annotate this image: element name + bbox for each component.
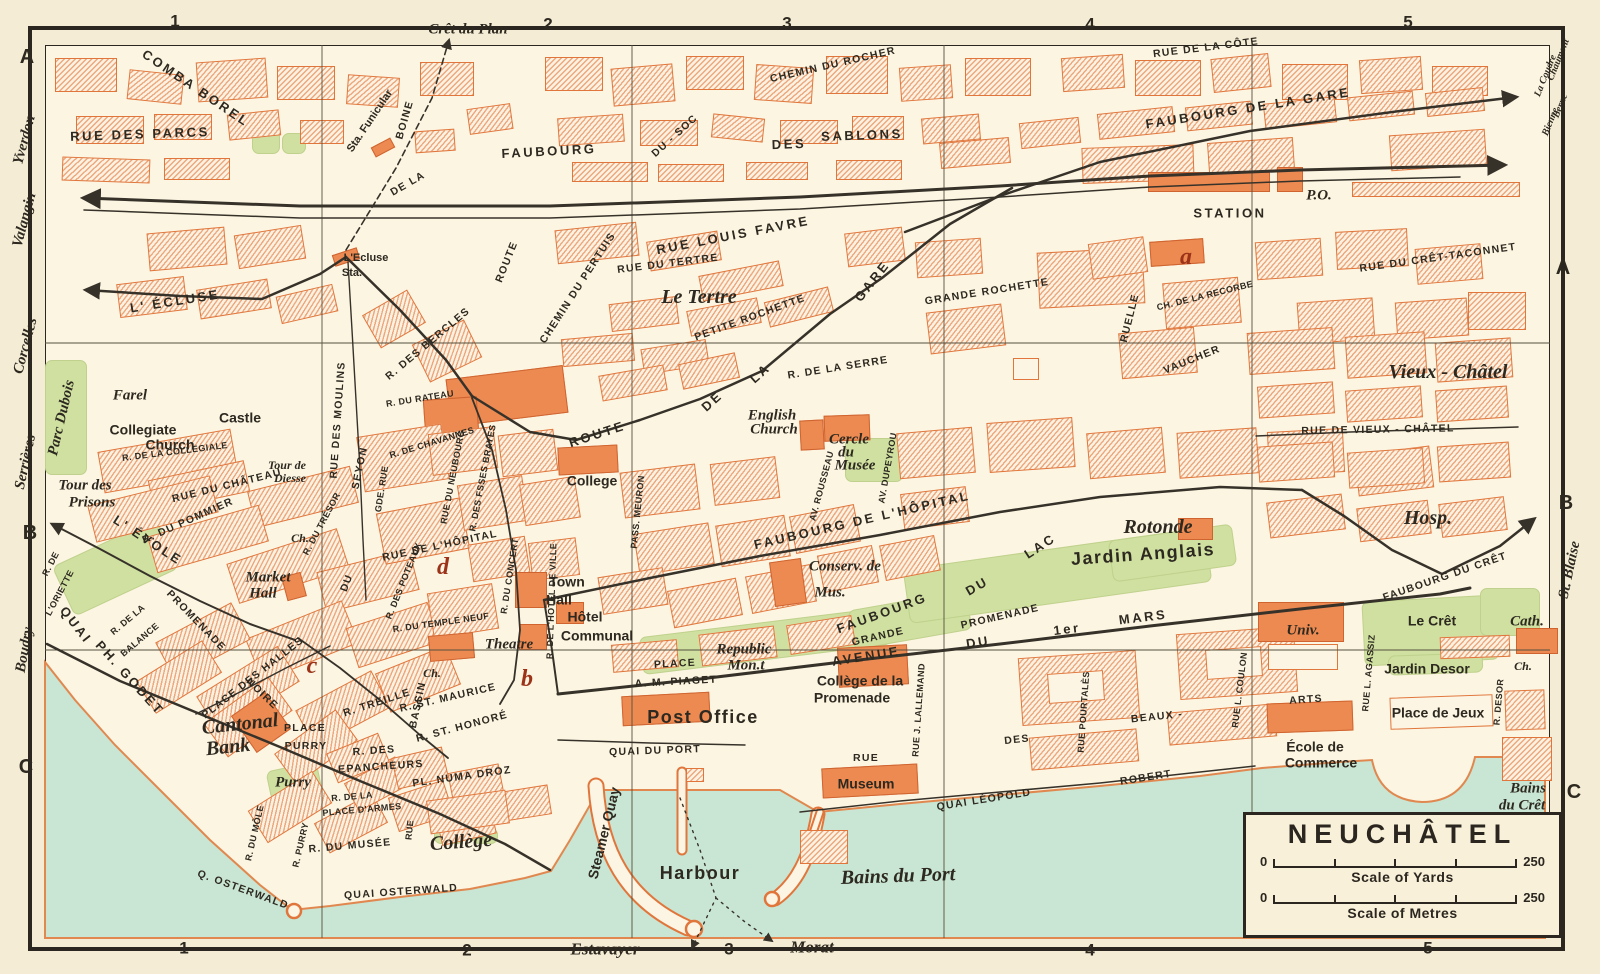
city-block: [300, 120, 344, 144]
label-rue: RUE: [853, 753, 879, 764]
city-block: [1247, 327, 1336, 375]
city-block: [658, 164, 724, 182]
building-solid: [1149, 238, 1205, 267]
label-b: B: [1559, 493, 1573, 513]
label-5: 5: [1423, 940, 1432, 957]
label-ch: Ch.: [291, 532, 309, 544]
city-block: [986, 417, 1075, 473]
city-block: [1061, 54, 1125, 92]
metres-zero: 0: [1260, 891, 1267, 904]
city-block: [55, 58, 117, 92]
label-du: DU: [965, 634, 991, 651]
label-harbour: Harbour: [660, 864, 741, 882]
map-title: NEUCHÂTEL: [1260, 821, 1545, 848]
map-sheet: NEUCHÂTEL 0 250 Scale of Yards 0 250 Sca…: [0, 0, 1600, 974]
city-block: [572, 162, 648, 182]
label-cole-de: École de: [1286, 740, 1344, 755]
label-univ: Univ.: [1286, 624, 1319, 639]
label-b: b: [521, 667, 533, 691]
city-block: [164, 158, 230, 180]
label-c: C: [19, 757, 33, 777]
label-church: Church: [146, 438, 195, 453]
label-des: DES: [772, 137, 807, 151]
label-a: A: [20, 47, 34, 67]
label-station: STATION: [1193, 207, 1266, 220]
label-cath: Cath.: [1510, 615, 1544, 630]
metres-scale: 0 250: [1260, 891, 1545, 904]
label-collegiate: Collegiate: [110, 423, 177, 438]
label-rue-de-vieux-ch-tel: RUE DE VIEUX - CHÂTEL: [1301, 423, 1454, 436]
city-block: [1440, 635, 1511, 659]
city-block: [915, 238, 983, 279]
city-block: [686, 56, 744, 90]
yards-scale: 0 250: [1260, 855, 1545, 868]
yards-caption: Scale of Yards: [1260, 870, 1545, 884]
city-block: [1468, 292, 1526, 330]
label-a: a: [1180, 245, 1192, 269]
label-hall: Hall: [249, 587, 277, 602]
building-solid: [515, 572, 547, 608]
label-place: PLACE: [284, 723, 326, 734]
label-jardin-desor: Jardin Desor: [1384, 662, 1470, 677]
label-tour-de: Tour de: [268, 459, 306, 471]
label-mus-e: Musée: [835, 459, 876, 474]
city-block: [1205, 646, 1263, 680]
label-hall: Hall: [546, 593, 572, 608]
label-commerce: Commerce: [1285, 756, 1357, 771]
label-c: c: [307, 654, 318, 678]
label-sablons: SABLONS: [821, 127, 903, 143]
building-solid: [769, 558, 807, 607]
label-college: College: [567, 474, 618, 489]
label-diesse: Diesse: [274, 472, 306, 484]
label-rotonde: Rotonde: [1124, 517, 1193, 537]
city-block: [746, 162, 808, 180]
label-ch: Ch.: [1514, 660, 1532, 672]
metres-max: 250: [1523, 891, 1545, 904]
label-1: 1: [170, 13, 179, 30]
metres-caption: Scale of Metres: [1260, 906, 1545, 920]
label-tour-des: Tour des: [58, 479, 111, 494]
yards-scale-bar: [1273, 859, 1517, 868]
city-block: [1088, 236, 1148, 279]
label-republic: Republic: [717, 643, 772, 658]
city-block: [1268, 644, 1338, 670]
label-1: 1: [179, 940, 188, 957]
label-estavayer: Estavayer: [571, 941, 640, 958]
city-block: [686, 768, 704, 782]
label-le-tertre: Le Tertre: [661, 287, 736, 307]
label-promenade: Promenade: [814, 691, 890, 706]
city-block: [62, 156, 151, 183]
label-museum: Museum: [838, 777, 895, 792]
label-morat: Morat: [790, 939, 833, 956]
label-des: DES: [1004, 733, 1030, 746]
label-3: 3: [782, 15, 791, 32]
label-a: A: [1556, 258, 1570, 278]
city-block: [836, 160, 902, 180]
city-block: [1347, 447, 1425, 488]
label-b: B: [23, 523, 37, 543]
city-block: [610, 63, 675, 106]
city-block: [1210, 53, 1271, 93]
city-block: [1255, 238, 1323, 281]
city-block: [414, 129, 455, 154]
label-bains-du-port: Bains du Port: [840, 864, 955, 888]
label-purry: PURRY: [285, 741, 328, 752]
city-block: [1047, 670, 1105, 704]
yards-zero: 0: [1260, 855, 1267, 868]
city-block: [1352, 182, 1520, 197]
label-place-de-jeux: Place de Jeux: [1392, 706, 1485, 721]
label-1er: 1er: [1053, 621, 1082, 637]
city-block: [420, 62, 474, 96]
label-post-office: Post Office: [647, 708, 759, 726]
legend-box: NEUCHÂTEL 0 250 Scale of Yards 0 250 Sca…: [1243, 812, 1562, 938]
label-bains: Bains: [1510, 782, 1546, 797]
city-block: [545, 57, 603, 91]
label-farel: Farel: [113, 389, 147, 404]
label-town: Town: [549, 575, 585, 590]
label-coll-ge: Collège: [429, 830, 492, 854]
label-place: PLACE: [654, 658, 697, 671]
label-5: 5: [1403, 14, 1412, 31]
city-block: [800, 830, 848, 864]
city-block: [1013, 358, 1039, 380]
city-block: [965, 58, 1031, 96]
building-solid: [1516, 628, 1558, 654]
city-block: [498, 429, 559, 478]
label-purry: Purry: [275, 776, 311, 791]
building-solid: [799, 419, 825, 450]
yards-max: 250: [1523, 855, 1545, 868]
city-block: [1435, 386, 1509, 423]
city-block: [277, 66, 335, 100]
label-cr-t-du-plan: Crêt du Plan: [428, 23, 507, 38]
city-block: [1135, 60, 1201, 96]
city-block: [896, 427, 976, 479]
city-block: [1437, 442, 1511, 483]
city-block: [1257, 441, 1335, 482]
label-sta: Sta.: [342, 267, 362, 279]
label-c: C: [1567, 782, 1581, 802]
metres-scale-bar: [1273, 895, 1517, 904]
city-block: [844, 227, 906, 268]
building-solid: [557, 444, 618, 475]
label-3: 3: [724, 941, 733, 958]
city-block: [1086, 427, 1166, 479]
building-solid: [428, 632, 475, 662]
city-block: [1359, 56, 1423, 94]
city-block: [1502, 737, 1552, 781]
label-conserv-de: Conserv. de: [809, 560, 881, 575]
building-solid: [1277, 167, 1303, 192]
label-le-cr-t: Le Crêt: [1408, 614, 1456, 629]
label-mon-t: Mon.t: [727, 659, 764, 674]
city-block: [1257, 381, 1335, 418]
city-block: [1345, 385, 1423, 422]
label-bank: Bank: [205, 735, 251, 760]
label-theatre: Theatre: [485, 638, 533, 653]
city-block: [1504, 689, 1545, 730]
city-block: [1389, 129, 1487, 172]
label-market: Market: [246, 571, 291, 586]
building-solid: [1148, 172, 1270, 192]
label-hosp: Hosp.: [1404, 508, 1452, 528]
city-block: [1176, 427, 1259, 478]
label-4: 4: [1085, 942, 1094, 959]
label-ch: Ch.: [423, 667, 441, 679]
label-prisons: Prisons: [69, 496, 116, 511]
label-d: d: [437, 555, 449, 579]
city-block: [899, 64, 953, 102]
label-castle: Castle: [219, 411, 261, 426]
label-communal: Communal: [561, 629, 633, 644]
label-p-o: P.O.: [1306, 189, 1332, 204]
label-2: 2: [543, 16, 552, 33]
label-2: 2: [462, 942, 471, 959]
label-l-ecluse: L'Ecluse: [344, 252, 389, 264]
label-vieux-ch-tel: Vieux - Châtel: [1389, 362, 1508, 382]
label-mus: Mus.: [814, 586, 845, 601]
city-block: [146, 227, 227, 272]
label-coll-ge-de-la: Collège de la: [817, 674, 903, 689]
label-arts: ARTS: [1289, 694, 1323, 707]
city-block: [710, 456, 781, 506]
label-church: Church: [750, 423, 798, 438]
label-h-tel: Hôtel: [568, 610, 603, 625]
label-4: 4: [1085, 16, 1094, 33]
